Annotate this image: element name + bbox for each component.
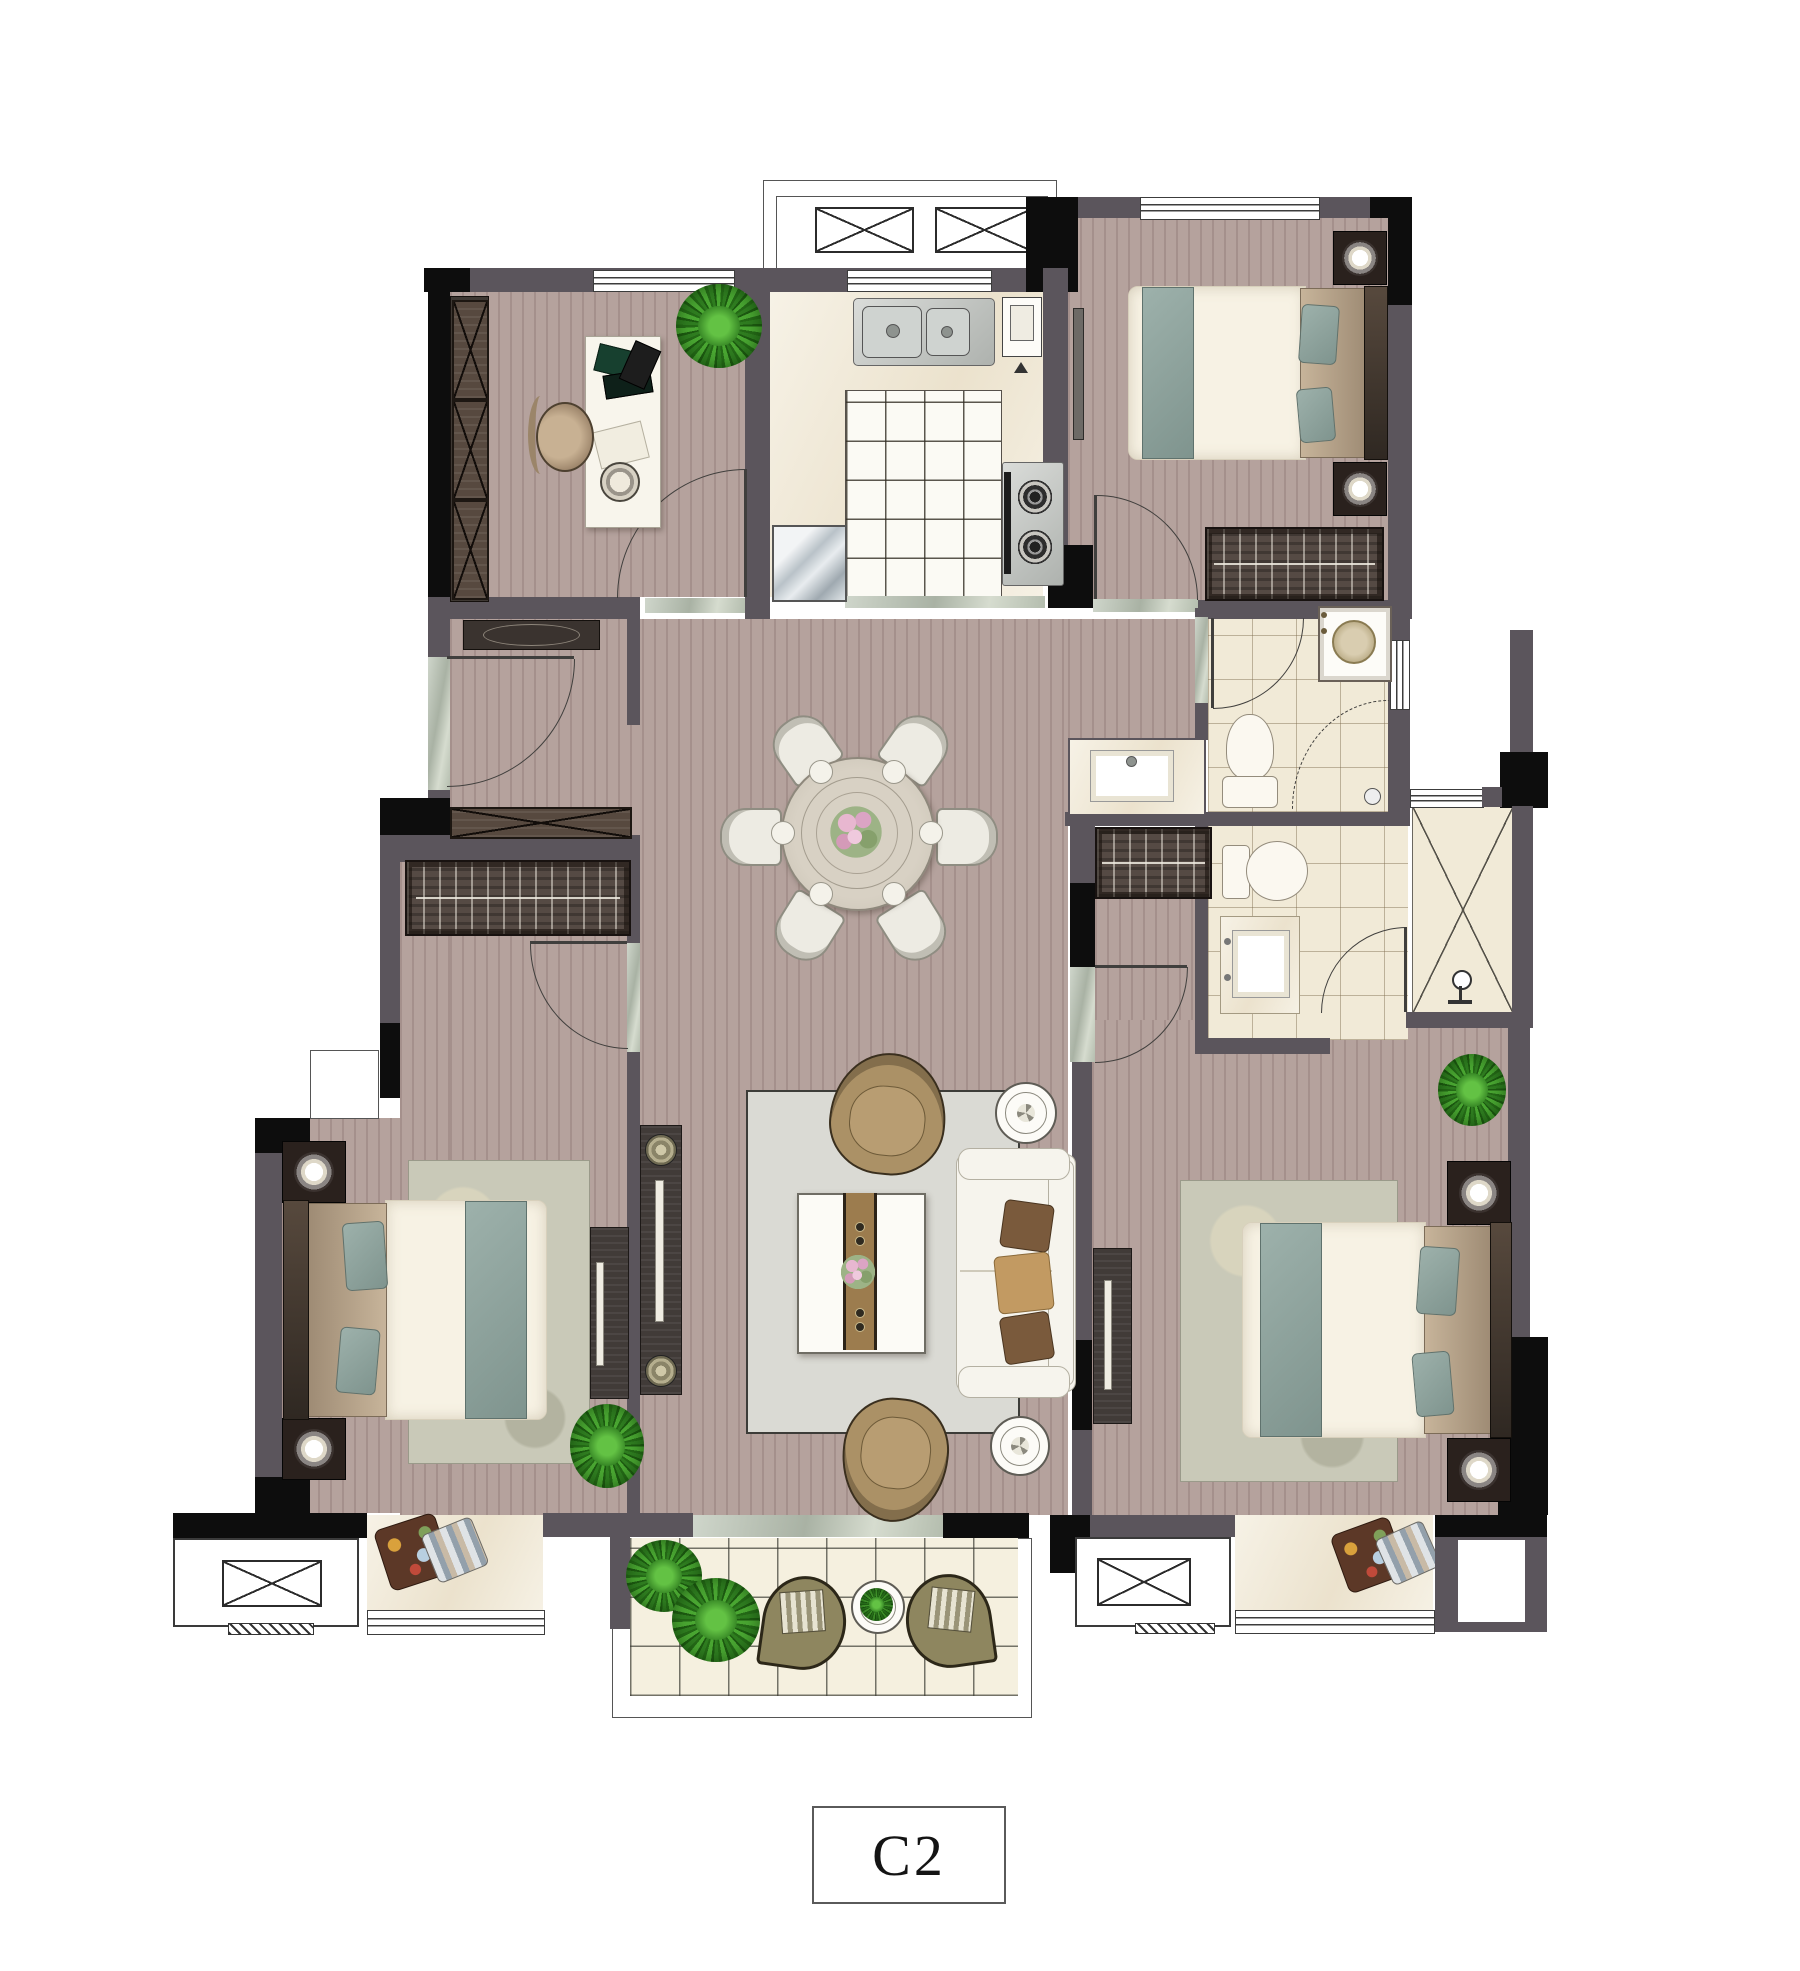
candle-icon (855, 1222, 865, 1232)
bathroom-1-door-threshold (1195, 615, 1208, 705)
column (1370, 197, 1412, 218)
wardrobe (1205, 527, 1384, 601)
faucet-icon (1126, 756, 1137, 767)
hall-south-wall (380, 835, 628, 862)
nightstand (1333, 462, 1387, 516)
shower-icon (1448, 1000, 1472, 1004)
plan-label-text: C2 (872, 1822, 946, 1889)
washer-knob-icon (1321, 612, 1327, 618)
desk-lamp-icon (600, 462, 640, 502)
faucet-icon (1224, 938, 1231, 945)
shower-icon (1459, 986, 1462, 1000)
wall-stub (1482, 787, 1502, 807)
bookcase-xbox (452, 300, 489, 400)
equipment-platform-icon (1097, 1558, 1191, 1606)
entry-partition (627, 610, 640, 725)
wardrobe (1095, 827, 1212, 899)
nightstand (1447, 1161, 1511, 1225)
plant-icon (570, 1404, 644, 1488)
floor-drain-icon (1364, 788, 1381, 805)
shower-icon (1452, 970, 1472, 990)
vent-grille-icon (1135, 1623, 1215, 1634)
stove-control-strip (1004, 472, 1011, 574)
console-decor-icon (483, 624, 580, 646)
equipment-platform-icon (935, 207, 1034, 253)
master-door-threshold (627, 943, 640, 1052)
kitchen-window-icon (847, 270, 992, 292)
nightstand (1447, 1438, 1511, 1502)
equipment-platform-icon (815, 207, 914, 253)
office-chair-back (528, 396, 553, 474)
bed-pillow (1296, 387, 1337, 444)
bed-headboard (1364, 286, 1388, 460)
tv-icon (1073, 308, 1084, 440)
decor-rosette-icon (645, 1134, 677, 1166)
column (1070, 883, 1095, 967)
south-wall (1090, 1515, 1235, 1537)
bookcase-xbox (452, 500, 489, 600)
side-table (995, 1082, 1057, 1144)
decor-rosette-icon (645, 1355, 677, 1387)
side-table (990, 1416, 1050, 1476)
table-flowers-icon (826, 802, 886, 862)
candle-icon (855, 1236, 865, 1246)
equipment-platform-icon (222, 1560, 322, 1607)
bed-pillow (1416, 1246, 1461, 1317)
living-bedroom-wall (1072, 1430, 1092, 1515)
east-wall-spur (1510, 630, 1533, 752)
sofa-pillow (999, 1199, 1055, 1253)
bay-window-icon (367, 1610, 545, 1635)
dining-chair (936, 808, 998, 866)
bed-runner (1260, 1223, 1322, 1437)
bay-window-icon (1235, 1610, 1435, 1634)
tv-cabinet (1093, 1248, 1132, 1424)
candle-icon (855, 1322, 865, 1332)
water-heater-panel (1010, 305, 1034, 341)
plate-icon (882, 760, 906, 784)
shower-room-east-wall (1512, 806, 1533, 1020)
plant-icon (676, 284, 762, 368)
sink-drain-icon (941, 326, 953, 338)
vanity-basin (1232, 930, 1290, 998)
shower-room-window-icon (1410, 789, 1484, 808)
bath-corridor-floor (1068, 619, 1195, 738)
gas-burner-icon (1014, 476, 1056, 518)
table-lamp-icon (1459, 1173, 1499, 1213)
nightstand (1333, 231, 1387, 285)
table-lamp-icon (1459, 1450, 1499, 1490)
washer-knob-icon (1321, 628, 1327, 634)
kitchen-threshold (845, 596, 1045, 608)
wall-stub (1195, 703, 1208, 740)
south-wall-black (173, 1513, 367, 1538)
bathroom-1-window-icon (1390, 640, 1410, 710)
chair-pillow (927, 1586, 975, 1632)
table-lamp-icon (294, 1429, 334, 1469)
column (380, 1023, 400, 1098)
sofa-pillow (999, 1310, 1056, 1365)
cabinet-mirror (655, 1180, 664, 1322)
kitchen-walkway-tile (845, 390, 1002, 599)
master-bedroom-west-wall (255, 1153, 282, 1477)
wall-stub (745, 597, 770, 619)
candle-icon (855, 1308, 865, 1318)
bed-pillow (335, 1326, 381, 1395)
column (255, 1477, 310, 1515)
bedroom-north-window-icon (1140, 197, 1320, 220)
table-flowers-icon (838, 1252, 878, 1292)
bed-pillow (1411, 1350, 1454, 1417)
wardrobe (405, 860, 631, 936)
plate-icon (809, 760, 833, 784)
shoe-cabinet (450, 807, 632, 839)
wardrobe-hanger-icon (416, 897, 620, 899)
washer-drum-icon (1332, 620, 1376, 664)
plan-label: C2 (812, 1806, 1006, 1904)
toilet (1246, 841, 1308, 901)
gas-burner-icon (1014, 526, 1056, 568)
plate-icon (809, 882, 833, 906)
south-wall-black (1435, 1515, 1547, 1537)
refrigerator (772, 525, 847, 602)
bed-pillow (342, 1221, 389, 1292)
plant-icon (1438, 1054, 1506, 1126)
wall-stub (1195, 608, 1208, 617)
plate-icon (882, 882, 906, 906)
sofa-armrest (958, 1148, 1070, 1180)
toilet (1226, 714, 1274, 780)
tv-icon (596, 1262, 604, 1366)
toilet-tank (1222, 776, 1278, 808)
bookcase-xbox (452, 400, 489, 500)
sofa-pillow (993, 1251, 1055, 1315)
sofa-armrest (958, 1366, 1070, 1398)
study-door-threshold (645, 598, 745, 613)
south-wall (543, 1513, 693, 1537)
bathroom-2-south-wall (1195, 1038, 1330, 1054)
table-lamp-icon (1342, 471, 1378, 507)
wardrobe-hanger-icon (1214, 563, 1375, 565)
floor-plan-c2: C2 (0, 0, 1800, 1971)
table-lamp-icon (1342, 240, 1378, 276)
sink-drain-icon (886, 324, 900, 338)
plant-icon (860, 1588, 893, 1621)
plant-icon (672, 1578, 760, 1662)
south-east-opening (1458, 1540, 1525, 1622)
vent-grille-icon (228, 1623, 314, 1635)
column (943, 1513, 1029, 1538)
bed-runner (465, 1201, 527, 1419)
chair-pillow (779, 1589, 826, 1634)
west-wall (428, 617, 450, 657)
faucet-icon (1224, 974, 1231, 981)
bedroom-se-door-threshold (1070, 967, 1095, 1062)
bedroom-north-door-threshold (1093, 599, 1198, 612)
column (1500, 752, 1548, 808)
tv-icon (1104, 1280, 1112, 1390)
plate-icon (771, 821, 795, 845)
bed-headboard (283, 1200, 309, 1420)
gas-symbol-icon (1014, 362, 1028, 373)
west-wall (380, 852, 400, 1023)
table-lamp-icon (294, 1152, 334, 1192)
nook-west-wall (1070, 826, 1095, 883)
west-wall-black (428, 268, 450, 617)
column (1388, 218, 1412, 305)
bed-runner (1142, 287, 1194, 459)
nightstand (282, 1418, 346, 1480)
plate-icon (919, 821, 943, 845)
nightstand (282, 1141, 346, 1203)
wardrobe-hanger-icon (1102, 862, 1206, 864)
bed-pillow (1298, 304, 1340, 366)
bed-headboard (1490, 1222, 1512, 1438)
exterior-platform (310, 1050, 379, 1119)
